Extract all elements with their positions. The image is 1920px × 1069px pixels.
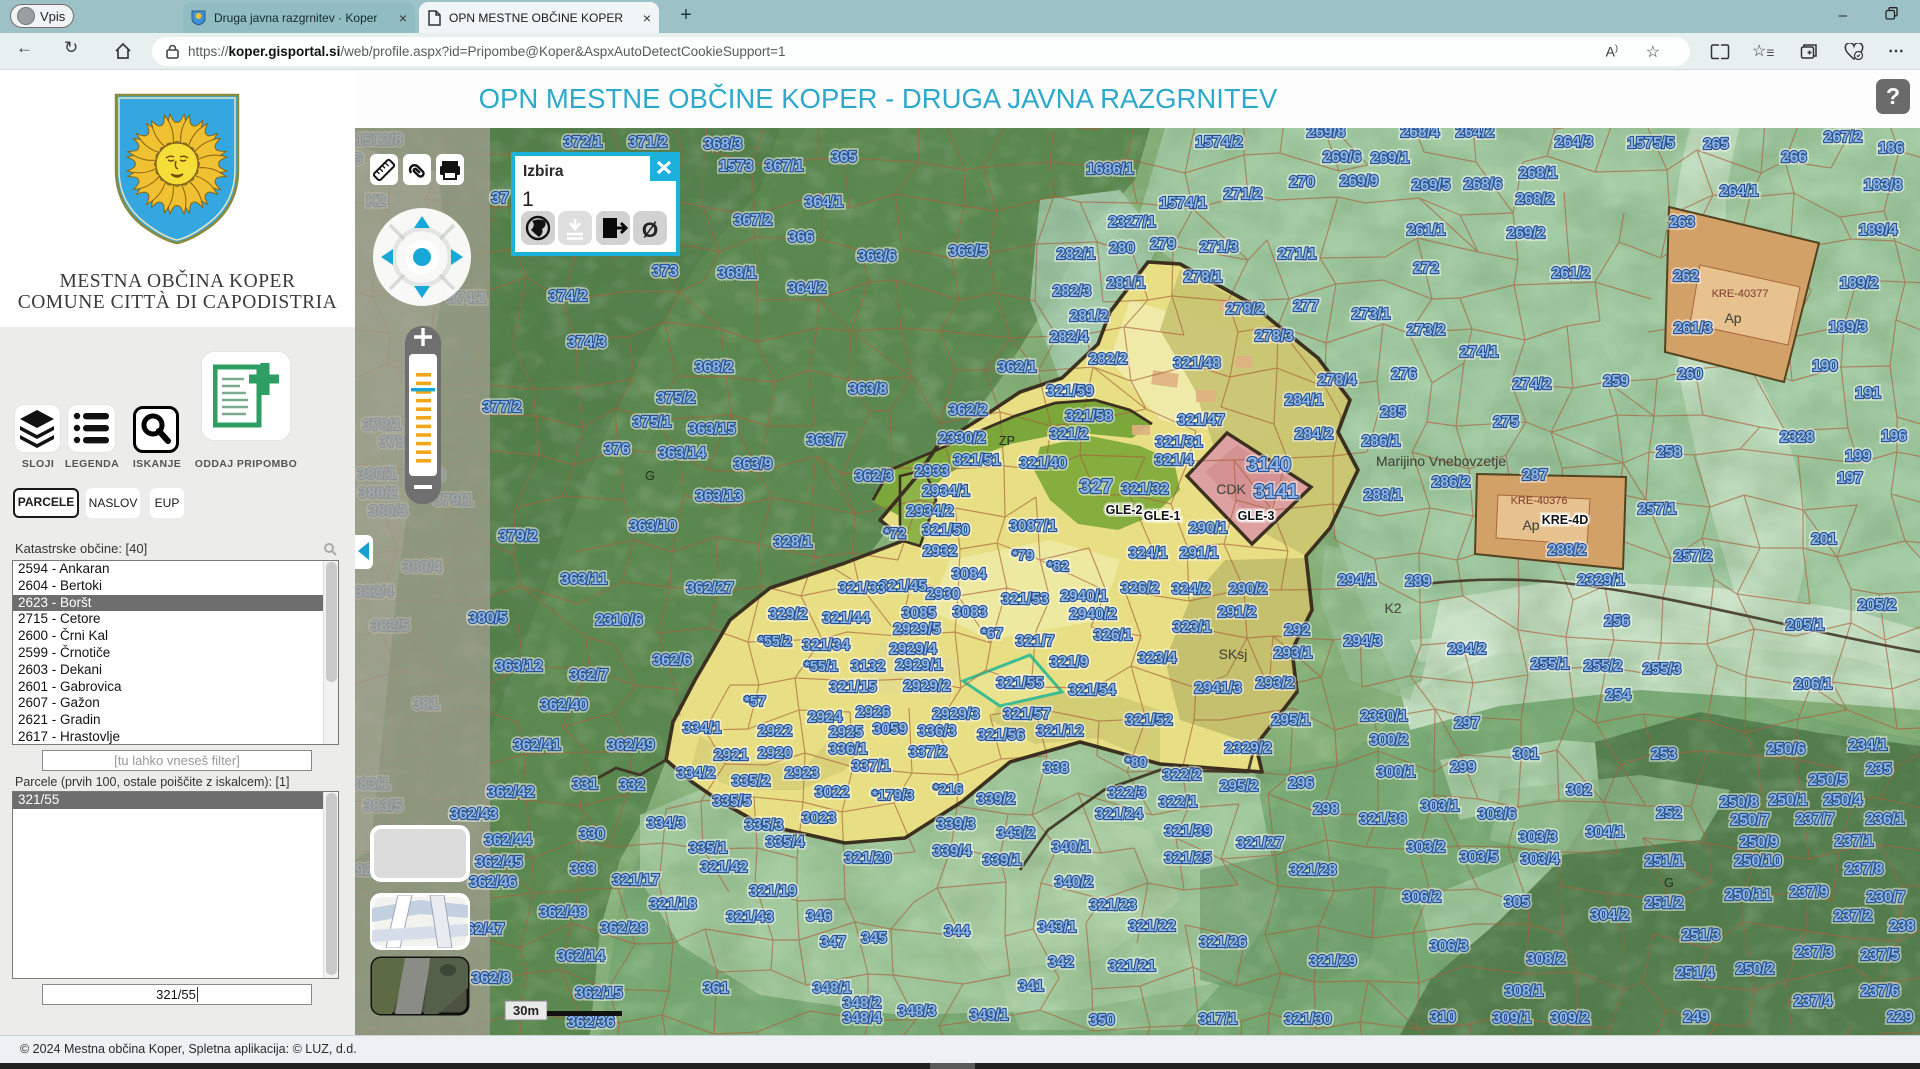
svg-text:189/3: 189/3 — [1829, 319, 1868, 336]
svg-text:305: 305 — [1504, 894, 1530, 911]
svg-text:2930: 2930 — [926, 586, 960, 603]
svg-text:340/2: 340/2 — [1055, 874, 1094, 891]
svg-text:362/48: 362/48 — [539, 904, 587, 921]
svg-text:264/1: 264/1 — [1720, 183, 1759, 200]
svg-text:G: G — [1664, 876, 1674, 890]
svg-text:364/2: 364/2 — [788, 280, 827, 297]
svg-text:189/4: 189/4 — [1859, 222, 1898, 239]
svg-text:2934/1: 2934/1 — [922, 483, 970, 500]
svg-text:2929/4: 2929/4 — [889, 641, 937, 658]
svg-text:199: 199 — [1845, 448, 1871, 465]
svg-text:G: G — [645, 469, 655, 483]
svg-text:250/4: 250/4 — [1824, 792, 1863, 809]
svg-text:321/43: 321/43 — [726, 909, 774, 926]
svg-text:341: 341 — [1018, 978, 1044, 995]
svg-text:321/26: 321/26 — [1199, 934, 1247, 951]
svg-text:362/42: 362/42 — [487, 784, 534, 801]
svg-text:278/4: 278/4 — [1318, 372, 1357, 389]
svg-text:230/7: 230/7 — [1867, 889, 1906, 906]
svg-text:321/58: 321/58 — [1065, 408, 1113, 425]
svg-text:*72: *72 — [884, 526, 906, 542]
svg-text:237/5: 237/5 — [1861, 947, 1900, 964]
svg-text:334/3: 334/3 — [647, 815, 686, 832]
svg-text:291/1: 291/1 — [1180, 545, 1219, 562]
svg-text:236/1: 236/1 — [1866, 811, 1905, 828]
svg-text:296: 296 — [1288, 775, 1314, 792]
svg-text:2929/5: 2929/5 — [893, 621, 941, 638]
svg-text:309/1: 309/1 — [1493, 1010, 1532, 1027]
svg-text:322/2: 322/2 — [1163, 767, 1202, 784]
svg-text:321/34: 321/34 — [802, 637, 850, 654]
svg-text:257/2: 257/2 — [1674, 548, 1713, 565]
svg-text:255/2: 255/2 — [1584, 658, 1623, 675]
svg-text:*57: *57 — [744, 694, 766, 710]
svg-text:363/15: 363/15 — [688, 421, 736, 438]
svg-text:308/1: 308/1 — [1505, 983, 1544, 1000]
svg-text:262: 262 — [1673, 268, 1699, 285]
svg-text:Ap: Ap — [1522, 517, 1539, 533]
svg-text:280: 280 — [1109, 240, 1135, 257]
svg-text:321/19: 321/19 — [749, 883, 797, 900]
svg-text:264/2: 264/2 — [1456, 128, 1495, 141]
svg-text:344: 344 — [944, 923, 970, 940]
svg-text:250/10: 250/10 — [1734, 853, 1781, 870]
svg-text:337/2: 337/2 — [909, 744, 948, 761]
svg-text:304/1: 304/1 — [1586, 824, 1625, 841]
svg-text:302: 302 — [1566, 782, 1592, 799]
svg-text:363/5: 363/5 — [949, 243, 988, 260]
svg-text:362/44: 362/44 — [484, 832, 532, 849]
svg-text:306/3: 306/3 — [1430, 938, 1469, 955]
svg-text:363/8: 363/8 — [849, 381, 888, 398]
svg-text:327: 327 — [1079, 476, 1112, 498]
svg-text:KRE-40377: KRE-40377 — [1712, 288, 1769, 300]
svg-text:321/52: 321/52 — [1125, 712, 1172, 729]
svg-text:368/3: 368/3 — [704, 136, 743, 153]
svg-text:290/1: 290/1 — [1189, 520, 1228, 537]
svg-text:*216: *216 — [933, 782, 963, 798]
svg-text:274/2: 274/2 — [1513, 376, 1552, 393]
svg-text:300/2: 300/2 — [1370, 732, 1409, 749]
svg-text:335/5: 335/5 — [713, 793, 752, 810]
svg-text:GLE-2: GLE-2 — [1106, 503, 1143, 517]
svg-text:337/1: 337/1 — [852, 758, 891, 775]
svg-text:379/2: 379/2 — [499, 528, 538, 545]
svg-text:257/1: 257/1 — [1638, 501, 1677, 518]
svg-text:295/1: 295/1 — [1272, 712, 1311, 729]
svg-text:269/6: 269/6 — [1323, 149, 1362, 166]
svg-text:269/1: 269/1 — [1371, 150, 1410, 167]
svg-text:367/2: 367/2 — [734, 212, 773, 229]
svg-text:2932: 2932 — [923, 543, 957, 560]
svg-text:324/1: 324/1 — [1129, 545, 1168, 562]
svg-text:276: 276 — [1391, 366, 1417, 383]
svg-text:321/7: 321/7 — [1016, 633, 1055, 650]
svg-text:3022: 3022 — [815, 784, 849, 801]
svg-text:367/1: 367/1 — [765, 158, 804, 175]
svg-text:322/3: 322/3 — [1108, 785, 1147, 802]
svg-text:363/6: 363/6 — [858, 248, 897, 265]
svg-text:255/3: 255/3 — [1643, 661, 1682, 678]
svg-text:265: 265 — [1703, 136, 1729, 153]
svg-text:366: 366 — [788, 229, 814, 246]
svg-text:2925: 2925 — [829, 724, 864, 741]
svg-text:373: 373 — [652, 263, 678, 280]
svg-text:362/7: 362/7 — [570, 667, 609, 684]
svg-text:2329/2: 2329/2 — [1224, 740, 1271, 757]
svg-text:321/57: 321/57 — [1003, 706, 1050, 723]
svg-text:347: 347 — [820, 934, 846, 951]
svg-text:251/4: 251/4 — [1676, 965, 1715, 982]
svg-text:ZP: ZP — [999, 434, 1015, 448]
svg-text:1575/5: 1575/5 — [1627, 135, 1675, 152]
svg-text:321/32: 321/32 — [1121, 481, 1168, 498]
svg-text:363/13: 363/13 — [695, 488, 743, 505]
svg-text:339/1: 339/1 — [983, 852, 1022, 869]
svg-text:335/2: 335/2 — [732, 773, 771, 790]
svg-text:263: 263 — [1669, 214, 1695, 231]
svg-text:286/2: 286/2 — [1432, 474, 1471, 491]
svg-text:Izbira: Izbira — [523, 163, 564, 180]
svg-text:321/30: 321/30 — [1284, 1011, 1331, 1028]
svg-text:281/1: 281/1 — [1107, 275, 1146, 292]
svg-text:237/3: 237/3 — [1795, 944, 1834, 961]
svg-text:GLE-3: GLE-3 — [1238, 509, 1275, 523]
svg-text:374/2: 374/2 — [549, 288, 588, 305]
svg-text:303/6: 303/6 — [1478, 806, 1517, 823]
svg-text:321/50: 321/50 — [922, 522, 969, 539]
svg-text:309/2: 309/2 — [1551, 1010, 1590, 1027]
svg-text:234/1: 234/1 — [1849, 737, 1888, 754]
svg-text:339/4: 339/4 — [933, 843, 972, 860]
svg-text:321/9: 321/9 — [1050, 654, 1089, 671]
svg-text:285: 285 — [1380, 404, 1406, 421]
svg-text:321/2: 321/2 — [1050, 426, 1089, 443]
svg-text:278/1: 278/1 — [1184, 269, 1223, 286]
svg-text:293/2: 293/2 — [1256, 675, 1295, 692]
svg-text:284/1: 284/1 — [1285, 392, 1324, 409]
svg-text:321/15: 321/15 — [829, 679, 877, 696]
svg-text:2929/1: 2929/1 — [895, 657, 943, 674]
svg-text:282/3: 282/3 — [1053, 283, 1092, 300]
svg-text:2330/2: 2330/2 — [938, 430, 985, 447]
svg-text:303/1: 303/1 — [1421, 798, 1460, 815]
svg-text:*67: *67 — [981, 626, 1003, 642]
svg-text:2921: 2921 — [714, 747, 749, 764]
svg-text:267/2: 267/2 — [1824, 129, 1863, 146]
svg-text:362/1: 362/1 — [998, 359, 1037, 376]
svg-text:2933: 2933 — [915, 463, 950, 480]
svg-text:282/4: 282/4 — [1050, 329, 1089, 346]
svg-text:197: 197 — [1837, 470, 1863, 487]
svg-text:288/1: 288/1 — [1364, 487, 1403, 504]
svg-text:335/1: 335/1 — [689, 840, 728, 857]
svg-text:274/1: 274/1 — [1460, 344, 1499, 361]
svg-text:323/1: 323/1 — [1173, 619, 1212, 636]
svg-text:362/3: 362/3 — [855, 468, 894, 485]
svg-text:237/6: 237/6 — [1861, 983, 1900, 1000]
svg-text:284/2: 284/2 — [1295, 426, 1334, 443]
svg-text:362/46: 362/46 — [469, 874, 517, 891]
svg-text:266: 266 — [1781, 149, 1807, 166]
svg-text:268/4: 268/4 — [1401, 128, 1440, 141]
svg-text:237/7: 237/7 — [1796, 811, 1835, 828]
svg-text:235: 235 — [1866, 761, 1892, 778]
svg-text:37: 37 — [491, 190, 508, 207]
svg-text:288/2: 288/2 — [1548, 542, 1587, 559]
svg-text:362/49: 362/49 — [607, 737, 655, 754]
svg-text:308/2: 308/2 — [1527, 951, 1566, 968]
svg-text:3023: 3023 — [802, 810, 837, 827]
svg-text:321/42: 321/42 — [700, 859, 747, 876]
svg-text:342: 342 — [1048, 954, 1074, 971]
svg-text:269/8: 269/8 — [1307, 128, 1346, 141]
svg-text:*80: *80 — [1125, 755, 1147, 771]
svg-text:1686/1: 1686/1 — [1086, 161, 1134, 178]
svg-text:317/1: 317/1 — [1199, 1011, 1238, 1028]
svg-text:250/2: 250/2 — [1736, 961, 1775, 978]
svg-text:310: 310 — [1430, 1009, 1456, 1026]
svg-text:306/2: 306/2 — [1403, 889, 1442, 906]
svg-text:363/10: 363/10 — [629, 518, 676, 535]
svg-text:277: 277 — [1293, 298, 1319, 315]
svg-text:3059: 3059 — [873, 721, 908, 738]
svg-text:362/27: 362/27 — [686, 580, 733, 597]
svg-text:321/25: 321/25 — [1164, 850, 1212, 867]
svg-text:335/3: 335/3 — [745, 817, 784, 834]
svg-text:281/2: 281/2 — [1070, 308, 1109, 325]
svg-text:362/41: 362/41 — [513, 737, 561, 754]
svg-text:2934/2: 2934/2 — [906, 503, 953, 520]
svg-text:348/3: 348/3 — [898, 1003, 937, 1020]
svg-text:336/1: 336/1 — [829, 741, 868, 758]
svg-text:2329/1: 2329/1 — [1577, 572, 1625, 589]
svg-text:*55/1: *55/1 — [804, 659, 838, 675]
svg-text:287: 287 — [1522, 467, 1548, 484]
svg-text:254: 254 — [1605, 687, 1631, 704]
svg-text:298: 298 — [1313, 801, 1339, 818]
svg-text:303/5: 303/5 — [1460, 849, 1499, 866]
svg-text:362/28: 362/28 — [600, 920, 648, 937]
svg-text:321/55: 321/55 — [996, 675, 1044, 692]
svg-text:374/3: 374/3 — [568, 334, 607, 351]
svg-text:362/14: 362/14 — [557, 948, 605, 965]
svg-text:321/54: 321/54 — [1068, 682, 1116, 699]
svg-text:363/12: 363/12 — [495, 658, 542, 675]
svg-text:2940/2: 2940/2 — [1069, 606, 1116, 623]
svg-text:3141: 3141 — [1254, 481, 1299, 503]
svg-text:2330/1: 2330/1 — [1360, 708, 1408, 725]
svg-text:253: 253 — [1651, 746, 1677, 763]
svg-text:328/1: 328/1 — [774, 534, 813, 551]
svg-text:321/21: 321/21 — [1108, 958, 1156, 975]
svg-text:321/28: 321/28 — [1289, 862, 1337, 879]
svg-text:294/1: 294/1 — [1338, 572, 1377, 589]
svg-text:324/2: 324/2 — [1172, 581, 1211, 598]
svg-text:270: 270 — [1289, 174, 1315, 191]
svg-text:*55/2: *55/2 — [758, 634, 792, 650]
svg-text:272: 272 — [1413, 260, 1439, 277]
svg-text:30m: 30m — [513, 1003, 539, 1018]
svg-text:186: 186 — [1878, 140, 1904, 157]
svg-text:271/1: 271/1 — [1278, 246, 1317, 263]
svg-text:271/2: 271/2 — [1224, 186, 1263, 203]
svg-text:336/3: 336/3 — [918, 723, 957, 740]
svg-text:321/45: 321/45 — [879, 578, 927, 595]
svg-text:321/29: 321/29 — [1309, 953, 1357, 970]
svg-text:329/2: 329/2 — [769, 606, 808, 623]
svg-text:303/2: 303/2 — [1407, 839, 1446, 856]
svg-text:346: 346 — [806, 908, 832, 925]
svg-text:229: 229 — [1887, 1009, 1913, 1026]
svg-text:331: 331 — [572, 776, 598, 793]
svg-text:201: 201 — [1811, 531, 1837, 548]
svg-text:2941/3: 2941/3 — [1194, 680, 1242, 697]
svg-text:321/12: 321/12 — [1036, 723, 1083, 740]
svg-text:293/1: 293/1 — [1274, 645, 1313, 662]
svg-text:2327/1: 2327/1 — [1108, 214, 1156, 231]
svg-text:343/2: 343/2 — [997, 825, 1036, 842]
svg-text:252: 252 — [1656, 805, 1682, 822]
svg-text:3087/1: 3087/1 — [1009, 518, 1057, 535]
svg-text:361: 361 — [703, 980, 729, 997]
svg-text:330: 330 — [579, 826, 605, 843]
svg-text:250/5: 250/5 — [1809, 772, 1848, 789]
svg-text:256: 256 — [1604, 613, 1630, 630]
svg-text:1: 1 — [522, 188, 534, 211]
svg-text:321/48: 321/48 — [1173, 355, 1221, 372]
svg-text:250/7: 250/7 — [1731, 812, 1770, 829]
svg-text:190: 190 — [1812, 358, 1838, 375]
svg-text:*79: *79 — [1012, 548, 1034, 564]
svg-text:269/9: 269/9 — [1340, 173, 1379, 190]
svg-text:2929/3: 2929/3 — [932, 706, 980, 723]
svg-text:286/1: 286/1 — [1362, 433, 1401, 450]
svg-text:3132: 3132 — [851, 658, 885, 675]
svg-text:278/2: 278/2 — [1226, 301, 1265, 318]
svg-text:273/2: 273/2 — [1407, 322, 1446, 339]
svg-text:3085: 3085 — [902, 605, 937, 622]
svg-text:363/11: 363/11 — [561, 571, 608, 588]
svg-text:303/4: 303/4 — [1521, 851, 1560, 868]
svg-text:251/2: 251/2 — [1645, 895, 1684, 912]
svg-text:364/1: 364/1 — [805, 194, 844, 211]
svg-text:321/38: 321/38 — [1359, 811, 1407, 828]
svg-text:323/4: 323/4 — [1138, 650, 1177, 667]
svg-text:376: 376 — [604, 441, 630, 458]
svg-text:2310/6: 2310/6 — [595, 612, 643, 629]
svg-text:294/2: 294/2 — [1448, 641, 1487, 658]
svg-text:290/2: 290/2 — [1229, 581, 1268, 598]
svg-text:269/2: 269/2 — [1507, 225, 1546, 242]
svg-text:261/1: 261/1 — [1407, 222, 1446, 239]
svg-text:339/3: 339/3 — [937, 816, 976, 833]
svg-text:371/2: 371/2 — [629, 134, 668, 151]
svg-text:250/11: 250/11 — [1725, 887, 1772, 904]
svg-text:237/4: 237/4 — [1794, 993, 1833, 1010]
svg-text:375/1: 375/1 — [633, 414, 672, 431]
svg-text:2929/2: 2929/2 — [903, 678, 950, 695]
svg-text:196: 196 — [1881, 428, 1907, 445]
svg-text:362/36: 362/36 — [567, 1014, 615, 1031]
svg-text:326/2: 326/2 — [1121, 580, 1160, 597]
svg-text:368/2: 368/2 — [695, 359, 734, 376]
svg-text:1573: 1573 — [719, 158, 754, 175]
svg-text:KRE-4D: KRE-4D — [1542, 513, 1589, 527]
svg-text:303/3: 303/3 — [1519, 829, 1558, 846]
svg-text:191: 191 — [1855, 385, 1881, 402]
svg-text:250/8: 250/8 — [1720, 794, 1759, 811]
svg-text:3084: 3084 — [952, 566, 987, 583]
svg-text:268/2: 268/2 — [1516, 191, 1555, 208]
svg-text:268/6: 268/6 — [1464, 176, 1503, 193]
svg-text:321/4: 321/4 — [1155, 452, 1194, 469]
svg-text:Ap: Ap — [1724, 310, 1741, 326]
svg-text:365: 365 — [831, 149, 857, 166]
svg-text:321/22: 321/22 — [1128, 918, 1175, 935]
svg-text:Ø: Ø — [642, 219, 658, 242]
svg-text:CDK: CDK — [1216, 481, 1246, 497]
svg-text:321/24: 321/24 — [1095, 806, 1143, 823]
svg-text:275: 275 — [1493, 414, 1519, 431]
svg-text:334/1: 334/1 — [683, 720, 722, 737]
svg-text:362/2: 362/2 — [949, 402, 988, 419]
svg-text:362/40: 362/40 — [540, 697, 587, 714]
svg-text:299: 299 — [1450, 759, 1476, 776]
svg-text:261/3: 261/3 — [1674, 320, 1713, 337]
svg-text:3140: 3140 — [1247, 454, 1292, 476]
svg-text:321/59: 321/59 — [1046, 383, 1094, 400]
svg-text:292: 292 — [1284, 622, 1310, 639]
svg-text:237/8: 237/8 — [1845, 861, 1884, 878]
svg-text:301: 301 — [1513, 746, 1539, 763]
svg-text:362/15: 362/15 — [575, 985, 623, 1002]
svg-text:322/1: 322/1 — [1159, 794, 1198, 811]
svg-text:321/44: 321/44 — [822, 610, 870, 627]
svg-text:362/8: 362/8 — [472, 970, 511, 987]
svg-text:295/2: 295/2 — [1220, 778, 1259, 795]
svg-text:2328: 2328 — [1780, 429, 1815, 446]
svg-text:*179/3: *179/3 — [872, 788, 914, 804]
svg-text:*82: *82 — [1047, 559, 1069, 575]
svg-text:363/9: 363/9 — [734, 456, 773, 473]
svg-text:2926: 2926 — [856, 704, 891, 721]
svg-text:321/20: 321/20 — [844, 850, 891, 867]
svg-text:321/18: 321/18 — [649, 896, 697, 913]
svg-text:GLE-1: GLE-1 — [1144, 509, 1181, 523]
svg-text:377/2: 377/2 — [483, 399, 522, 416]
svg-text:321/33: 321/33 — [838, 580, 886, 597]
svg-text:321/47: 321/47 — [1177, 412, 1224, 429]
svg-text:282/2: 282/2 — [1089, 351, 1128, 368]
svg-text:268/1: 268/1 — [1519, 165, 1558, 182]
svg-text:362/45: 362/45 — [475, 854, 523, 871]
svg-text:304/2: 304/2 — [1591, 907, 1630, 924]
svg-text:363/14: 363/14 — [658, 445, 706, 462]
svg-text:326/1: 326/1 — [1094, 627, 1133, 644]
svg-text:363/7: 363/7 — [807, 432, 846, 449]
svg-text:297: 297 — [1454, 715, 1480, 732]
svg-text:2922: 2922 — [758, 723, 792, 740]
svg-text:261/2: 261/2 — [1552, 265, 1591, 282]
svg-text:300/1: 300/1 — [1377, 764, 1416, 781]
svg-text:251/1: 251/1 — [1645, 853, 1684, 870]
svg-text:2923: 2923 — [785, 765, 820, 782]
svg-text:238: 238 — [1889, 918, 1915, 935]
svg-text:380/5: 380/5 — [469, 610, 508, 627]
svg-text:SKsj: SKsj — [1219, 646, 1248, 662]
svg-text:1574/2: 1574/2 — [1195, 134, 1242, 151]
